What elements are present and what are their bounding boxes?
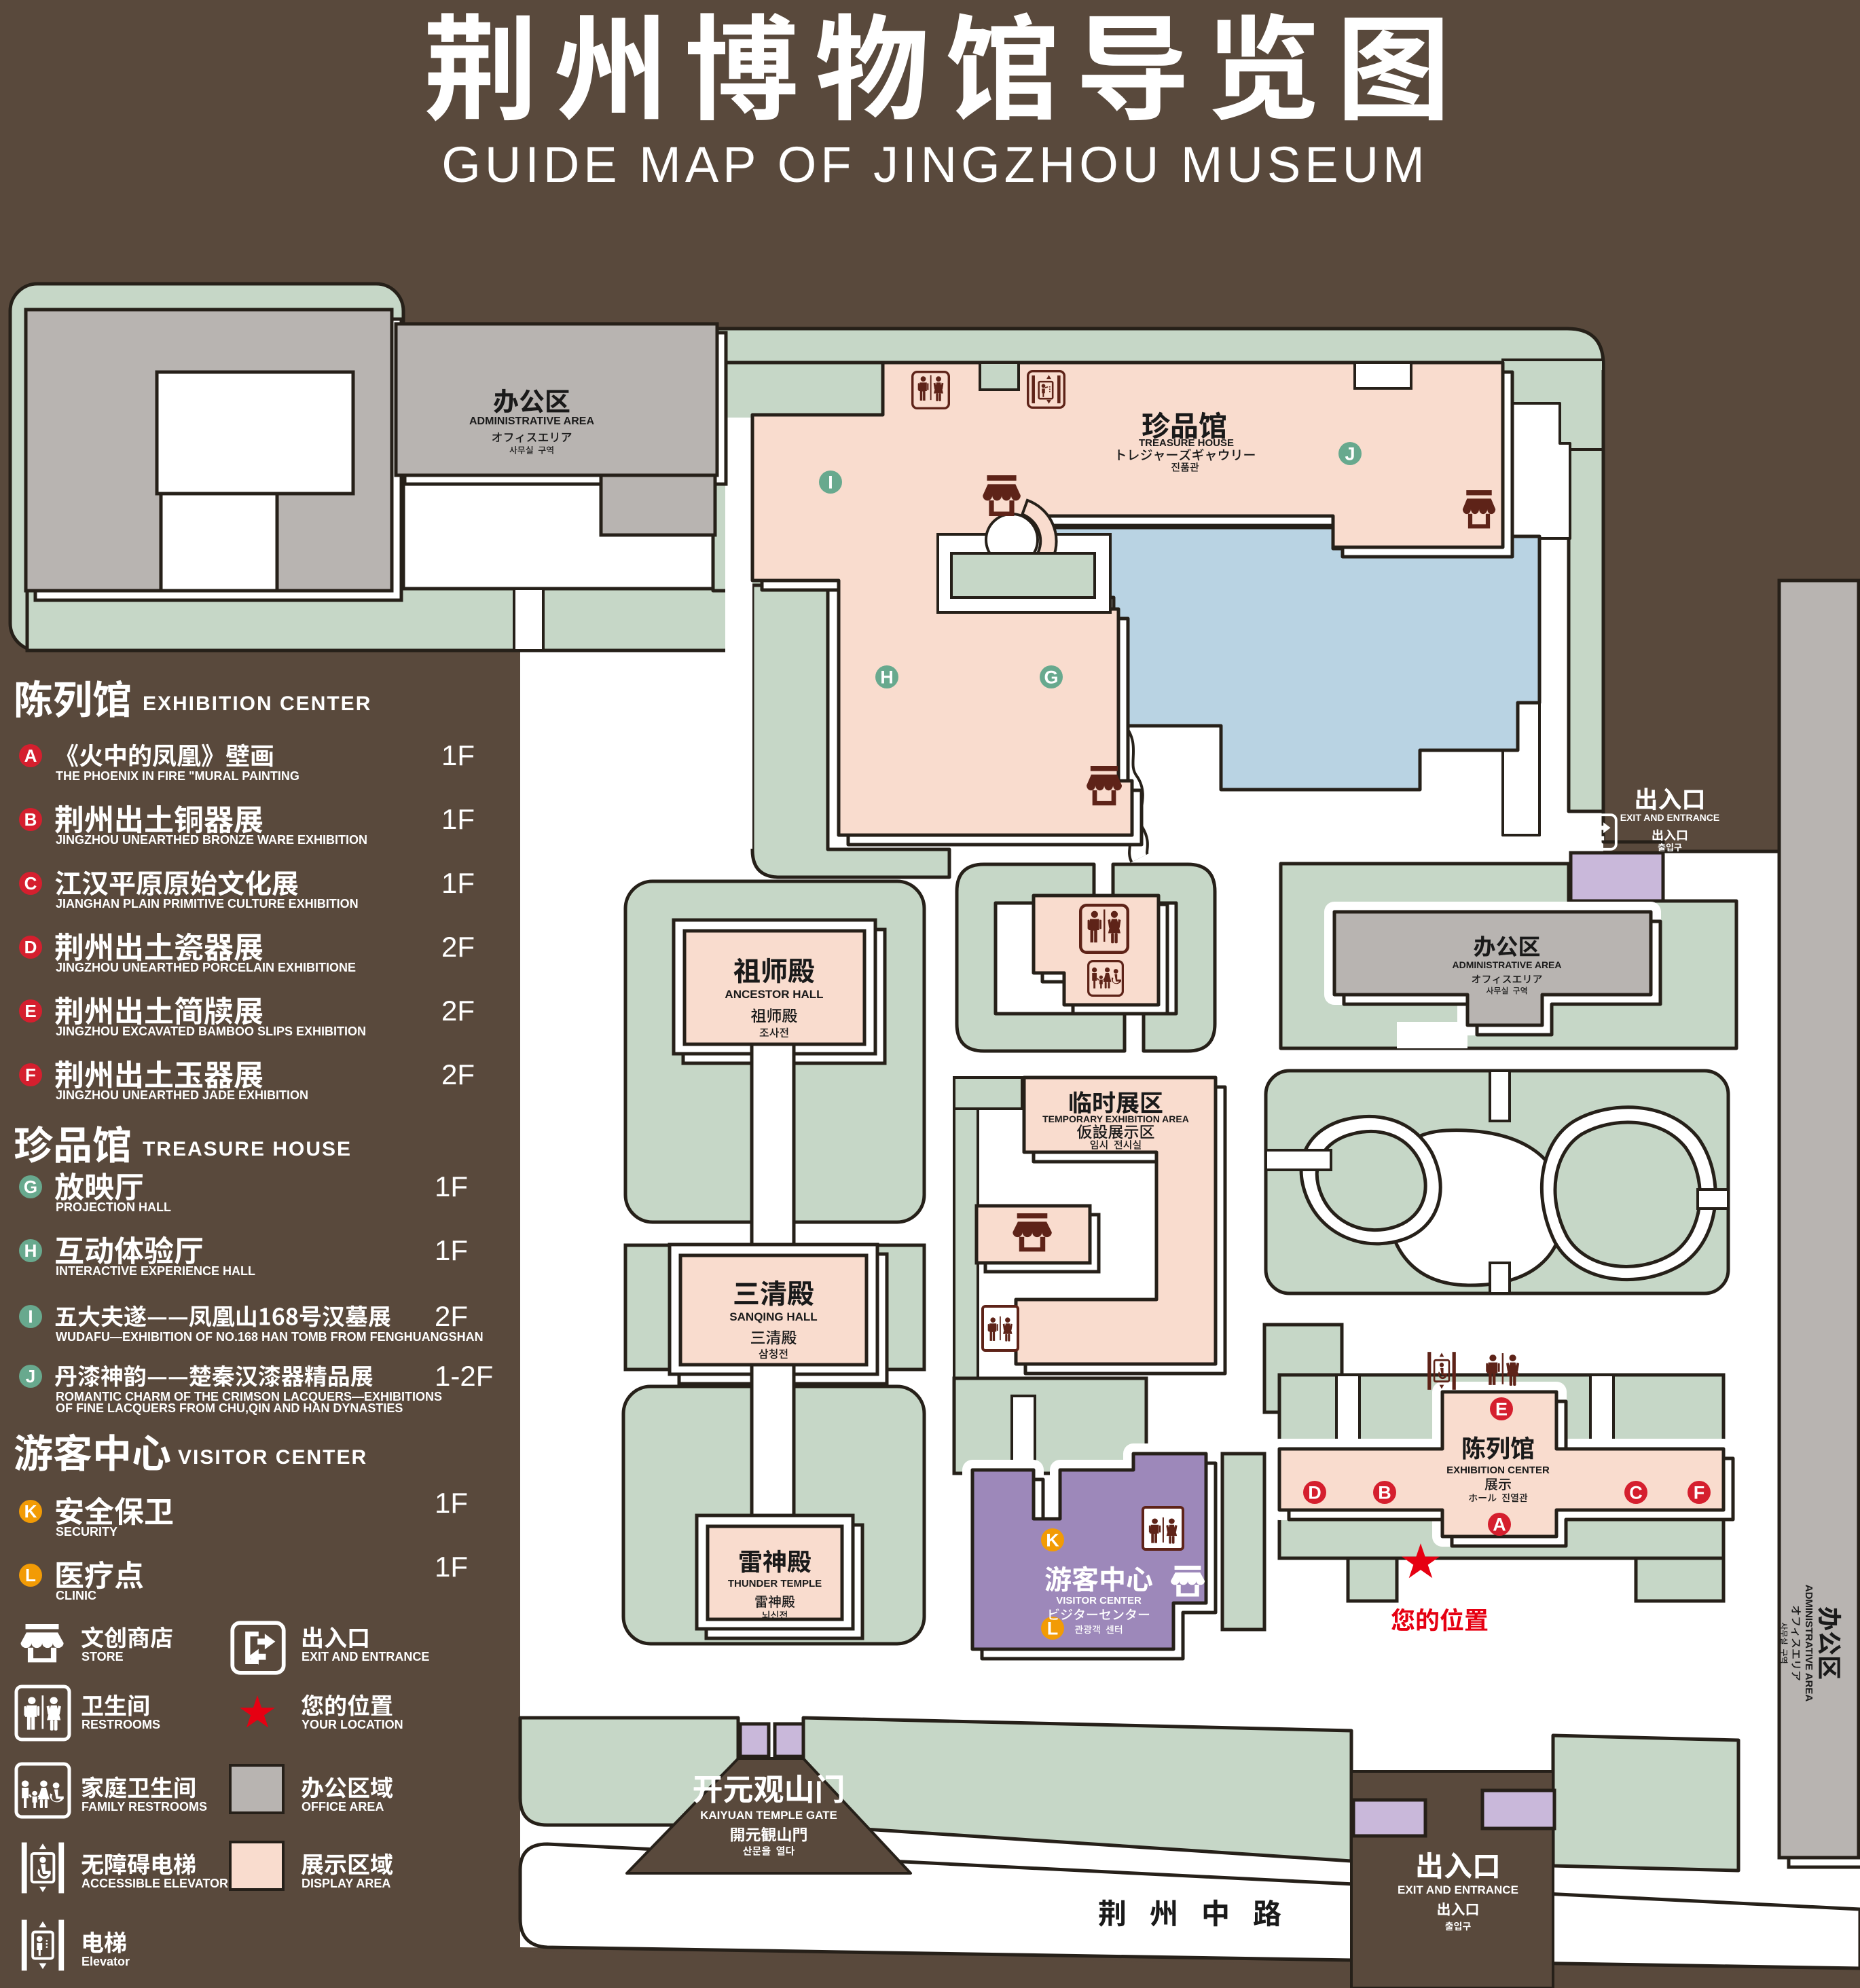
svg-text:KAIYUAN TEMPLE GATE: KAIYUAN TEMPLE GATE <box>700 1809 837 1822</box>
svg-text:I: I <box>28 1306 33 1327</box>
svg-text:THUNDER TEMPLE: THUNDER TEMPLE <box>728 1578 822 1589</box>
svg-text:K: K <box>24 1501 37 1522</box>
svg-text:C: C <box>1629 1482 1643 1503</box>
svg-text:D: D <box>1308 1482 1321 1503</box>
svg-text:SECURITY: SECURITY <box>56 1525 117 1539</box>
svg-text:JINGZHOU EXCAVATED BAMBOO SLIP: JINGZHOU EXCAVATED BAMBOO SLIPS EXHIBITI… <box>56 1025 366 1038</box>
svg-text:1F: 1F <box>435 1551 468 1583</box>
svg-text:K: K <box>1046 1530 1059 1550</box>
svg-text:A: A <box>24 745 37 766</box>
svg-text:JINGZHOU UNEARTHED BRONZE WARE: JINGZHOU UNEARTHED BRONZE WARE EXHIBITIO… <box>56 833 367 847</box>
svg-text:E: E <box>1495 1399 1508 1419</box>
svg-text:OFFICE AREA: OFFICE AREA <box>302 1800 384 1814</box>
svg-text:C: C <box>24 873 37 894</box>
svg-text:SANQING HALL: SANQING HALL <box>729 1310 817 1323</box>
svg-text:FAMILY RESTROOMS: FAMILY RESTROOMS <box>81 1800 207 1814</box>
svg-text:2F: 2F <box>435 1300 468 1332</box>
svg-text:J: J <box>26 1366 35 1386</box>
svg-text:CLINIC: CLINIC <box>56 1589 96 1602</box>
svg-text:WUDAFU—EXHIBITION OF NO.168 HA: WUDAFU—EXHIBITION OF NO.168 HAN TOMB FRO… <box>56 1330 484 1344</box>
svg-text:PROJECTION HALL: PROJECTION HALL <box>56 1200 171 1214</box>
svg-text:G: G <box>24 1177 37 1197</box>
svg-text:JINGZHOU UNEARTHED JADE EXHIBI: JINGZHOU UNEARTHED JADE EXHIBITION <box>56 1088 308 1102</box>
svg-text:1F: 1F <box>441 867 475 899</box>
svg-text:ADMINISTRATIVE AREA: ADMINISTRATIVE AREA <box>469 416 594 427</box>
svg-text:2F: 2F <box>441 931 475 963</box>
svg-text:STORE: STORE <box>81 1650 124 1663</box>
svg-text:TREASURE HOUSE: TREASURE HOUSE <box>1139 437 1234 449</box>
svg-text:GUIDE MAP OF JINGZHOU MUSEUM: GUIDE MAP OF JINGZHOU MUSEUM <box>441 136 1428 193</box>
svg-text:YOUR LOCATION: YOUR LOCATION <box>302 1718 403 1731</box>
svg-text:G: G <box>1044 667 1058 687</box>
svg-text:H: H <box>24 1240 37 1261</box>
svg-text:J: J <box>1345 443 1355 464</box>
svg-text:2F: 2F <box>441 995 475 1027</box>
svg-text:D: D <box>24 937 37 957</box>
svg-text:Elevator: Elevator <box>81 1955 130 1968</box>
svg-text:1F: 1F <box>435 1171 468 1202</box>
svg-text:1-2F: 1-2F <box>435 1360 493 1392</box>
svg-text:INTERACTIVE EXPERIENCE HALL: INTERACTIVE EXPERIENCE HALL <box>56 1264 255 1278</box>
svg-text:F: F <box>1694 1482 1705 1503</box>
svg-text:TREASURE HOUSE: TREASURE HOUSE <box>143 1138 352 1160</box>
svg-text:ANCESTOR HALL: ANCESTOR HALL <box>725 988 823 1001</box>
svg-text:2F: 2F <box>441 1059 475 1090</box>
svg-text:JIANGHAN PLAIN PRIMITIVE CULTU: JIANGHAN PLAIN PRIMITIVE CULTURE EXHIBIT… <box>56 897 359 910</box>
svg-text:E: E <box>24 1001 36 1021</box>
svg-text:THE PHOENIX IN FIRE "MURAL PAI: THE PHOENIX IN FIRE "MURAL PAINTING <box>56 769 299 783</box>
svg-text:EXIT AND ENTRANCE: EXIT AND ENTRANCE <box>1620 812 1720 823</box>
svg-text:EXHIBITION CENTER: EXHIBITION CENTER <box>1446 1465 1550 1476</box>
svg-text:RESTROOMS: RESTROOMS <box>81 1718 160 1731</box>
svg-text:I: I <box>828 472 833 492</box>
svg-text:L: L <box>1047 1618 1059 1638</box>
svg-text:TEMPORARY EXHIBITION AREA: TEMPORARY EXHIBITION AREA <box>1042 1113 1189 1124</box>
svg-text:JINGZHOU UNEARTHED PORCELAIN E: JINGZHOU UNEARTHED PORCELAIN EXHIBITIONE <box>56 961 356 974</box>
svg-text:F: F <box>25 1065 36 1085</box>
svg-text:VISITOR CENTER: VISITOR CENTER <box>178 1446 367 1469</box>
svg-text:EXIT AND ENTRANCE: EXIT AND ENTRANCE <box>302 1650 429 1663</box>
svg-text:L: L <box>25 1565 36 1585</box>
svg-text:EXIT AND ENTRANCE: EXIT AND ENTRANCE <box>1398 1883 1518 1896</box>
svg-text:ACCESSIBLE ELEVATOR: ACCESSIBLE ELEVATOR <box>81 1877 228 1890</box>
svg-text:1F: 1F <box>435 1487 468 1519</box>
svg-text:VISITOR CENTER: VISITOR CENTER <box>1056 1595 1142 1606</box>
svg-text:1F: 1F <box>435 1234 468 1266</box>
svg-text:H: H <box>880 667 894 687</box>
svg-text:1F: 1F <box>441 803 475 835</box>
svg-text:1F: 1F <box>441 739 475 771</box>
svg-text:B: B <box>24 809 37 830</box>
svg-text:ADMINISTRATIVE AREA: ADMINISTRATIVE AREA <box>1803 1585 1815 1702</box>
svg-text:OF FINE LACQUERS FROM CHU,QIN: OF FINE LACQUERS FROM CHU,QIN AND HAN DY… <box>56 1401 403 1415</box>
svg-text:ADMINISTRATIVE AREA: ADMINISTRATIVE AREA <box>1453 959 1562 970</box>
svg-text:EXHIBITION CENTER: EXHIBITION CENTER <box>143 693 371 715</box>
svg-text:B: B <box>1378 1482 1391 1503</box>
svg-text:DISPLAY AREA: DISPLAY AREA <box>302 1877 390 1890</box>
svg-text:A: A <box>1493 1514 1506 1534</box>
